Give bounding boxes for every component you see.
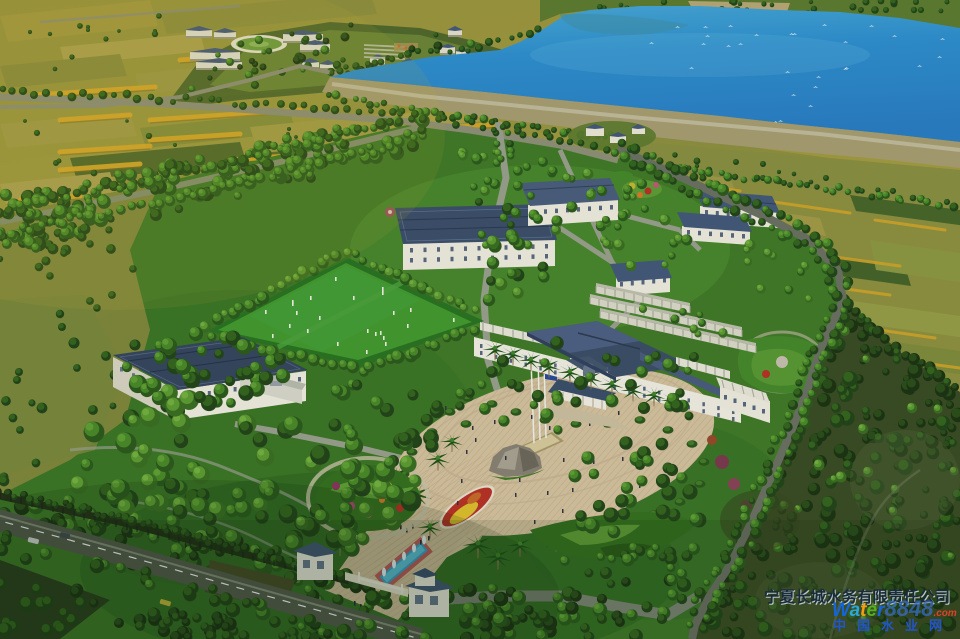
svg-text:中国水业网: 中国水业网 bbox=[833, 618, 953, 633]
